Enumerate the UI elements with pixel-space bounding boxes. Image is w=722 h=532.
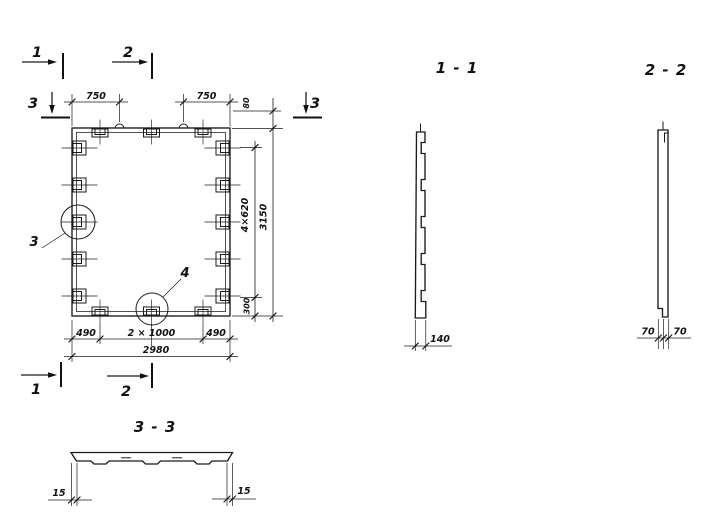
dim-300: 300	[243, 297, 252, 314]
panel-drawing: 3 4 750 750 80 4×620 3150 300	[0, 0, 722, 532]
bottom-notch	[92, 300, 108, 325]
section-1-1-title: 1 - 1	[436, 59, 479, 77]
detail-label-3: 3	[29, 235, 38, 250]
detail-leader-4	[163, 279, 181, 297]
side-notch	[205, 215, 241, 229]
cut-marker-label: 2	[123, 45, 133, 61]
dim-15-right: 15	[237, 486, 251, 497]
cut-marker-3-right: 3	[293, 92, 322, 118]
top-notch	[195, 120, 211, 145]
side-notch	[62, 252, 98, 266]
detail-leader-3	[42, 233, 65, 248]
side-notch	[62, 215, 98, 229]
section-1-1-profile	[415, 132, 426, 318]
cut-marker-label: 3	[28, 96, 38, 112]
cut-marker-1-top: 1	[22, 45, 63, 79]
top-notch	[92, 120, 108, 145]
cut-marker-label: 2	[121, 384, 131, 400]
section-markers: 1 2 3 3 1 2	[21, 45, 322, 400]
panel-inner-line	[77, 133, 226, 312]
plan-view: 3 4	[29, 120, 240, 326]
side-notch	[62, 289, 98, 303]
side-notch	[62, 141, 98, 155]
side-notch	[205, 141, 241, 155]
drawing-canvas: 3 4 750 750 80 4×620 3150 300	[0, 0, 722, 532]
dim-80: 80	[242, 97, 251, 109]
cut-marker-label: 3	[310, 96, 320, 112]
side-notch	[62, 178, 98, 192]
detail-label-4: 4	[179, 266, 189, 281]
bottom-notch	[144, 300, 160, 325]
plan-dimensions: 750 750 80 4×620 3150 300 490 2 × 1000 4…	[64, 91, 283, 362]
dim-2x1000: 2 × 1000	[128, 328, 176, 339]
section-2-2-profile	[658, 130, 668, 317]
dim-2980: 2980	[143, 345, 170, 356]
dim-15-left: 15	[52, 488, 66, 499]
dim-750-right: 750	[197, 91, 217, 102]
dim-4x620: 4×620	[240, 197, 251, 233]
cut-marker-label: 1	[32, 45, 42, 61]
dim-750-left: 750	[86, 91, 106, 102]
cut-marker-label: 1	[31, 382, 41, 398]
section-1-1: 1 - 1 140	[404, 59, 478, 351]
dim-490-right: 490	[205, 328, 226, 339]
dim-70-left: 70	[641, 327, 655, 338]
section-3-3-profile	[71, 453, 233, 465]
dim-3150: 3150	[259, 203, 270, 230]
cut-marker-1-bottom: 1	[21, 362, 61, 398]
dim-490-left: 490	[75, 328, 96, 339]
section-3-3-title: 3 - 3	[134, 418, 177, 436]
side-notch	[205, 178, 241, 192]
cut-marker-2-bottom: 2	[107, 363, 152, 400]
dim-70-right: 70	[673, 327, 687, 338]
bottom-notch	[195, 300, 211, 325]
section-2-2: 2 - 2 70 70	[637, 61, 691, 349]
section-2-2-title: 2 - 2	[645, 61, 688, 79]
section-3-3: 3 - 3 15 15	[48, 418, 256, 506]
cut-marker-2-top: 2	[112, 45, 152, 79]
side-notch	[205, 289, 241, 303]
side-notch	[205, 252, 241, 266]
top-notch	[144, 120, 160, 145]
dim-140: 140	[430, 334, 450, 345]
cut-marker-3-left: 3	[28, 92, 70, 118]
